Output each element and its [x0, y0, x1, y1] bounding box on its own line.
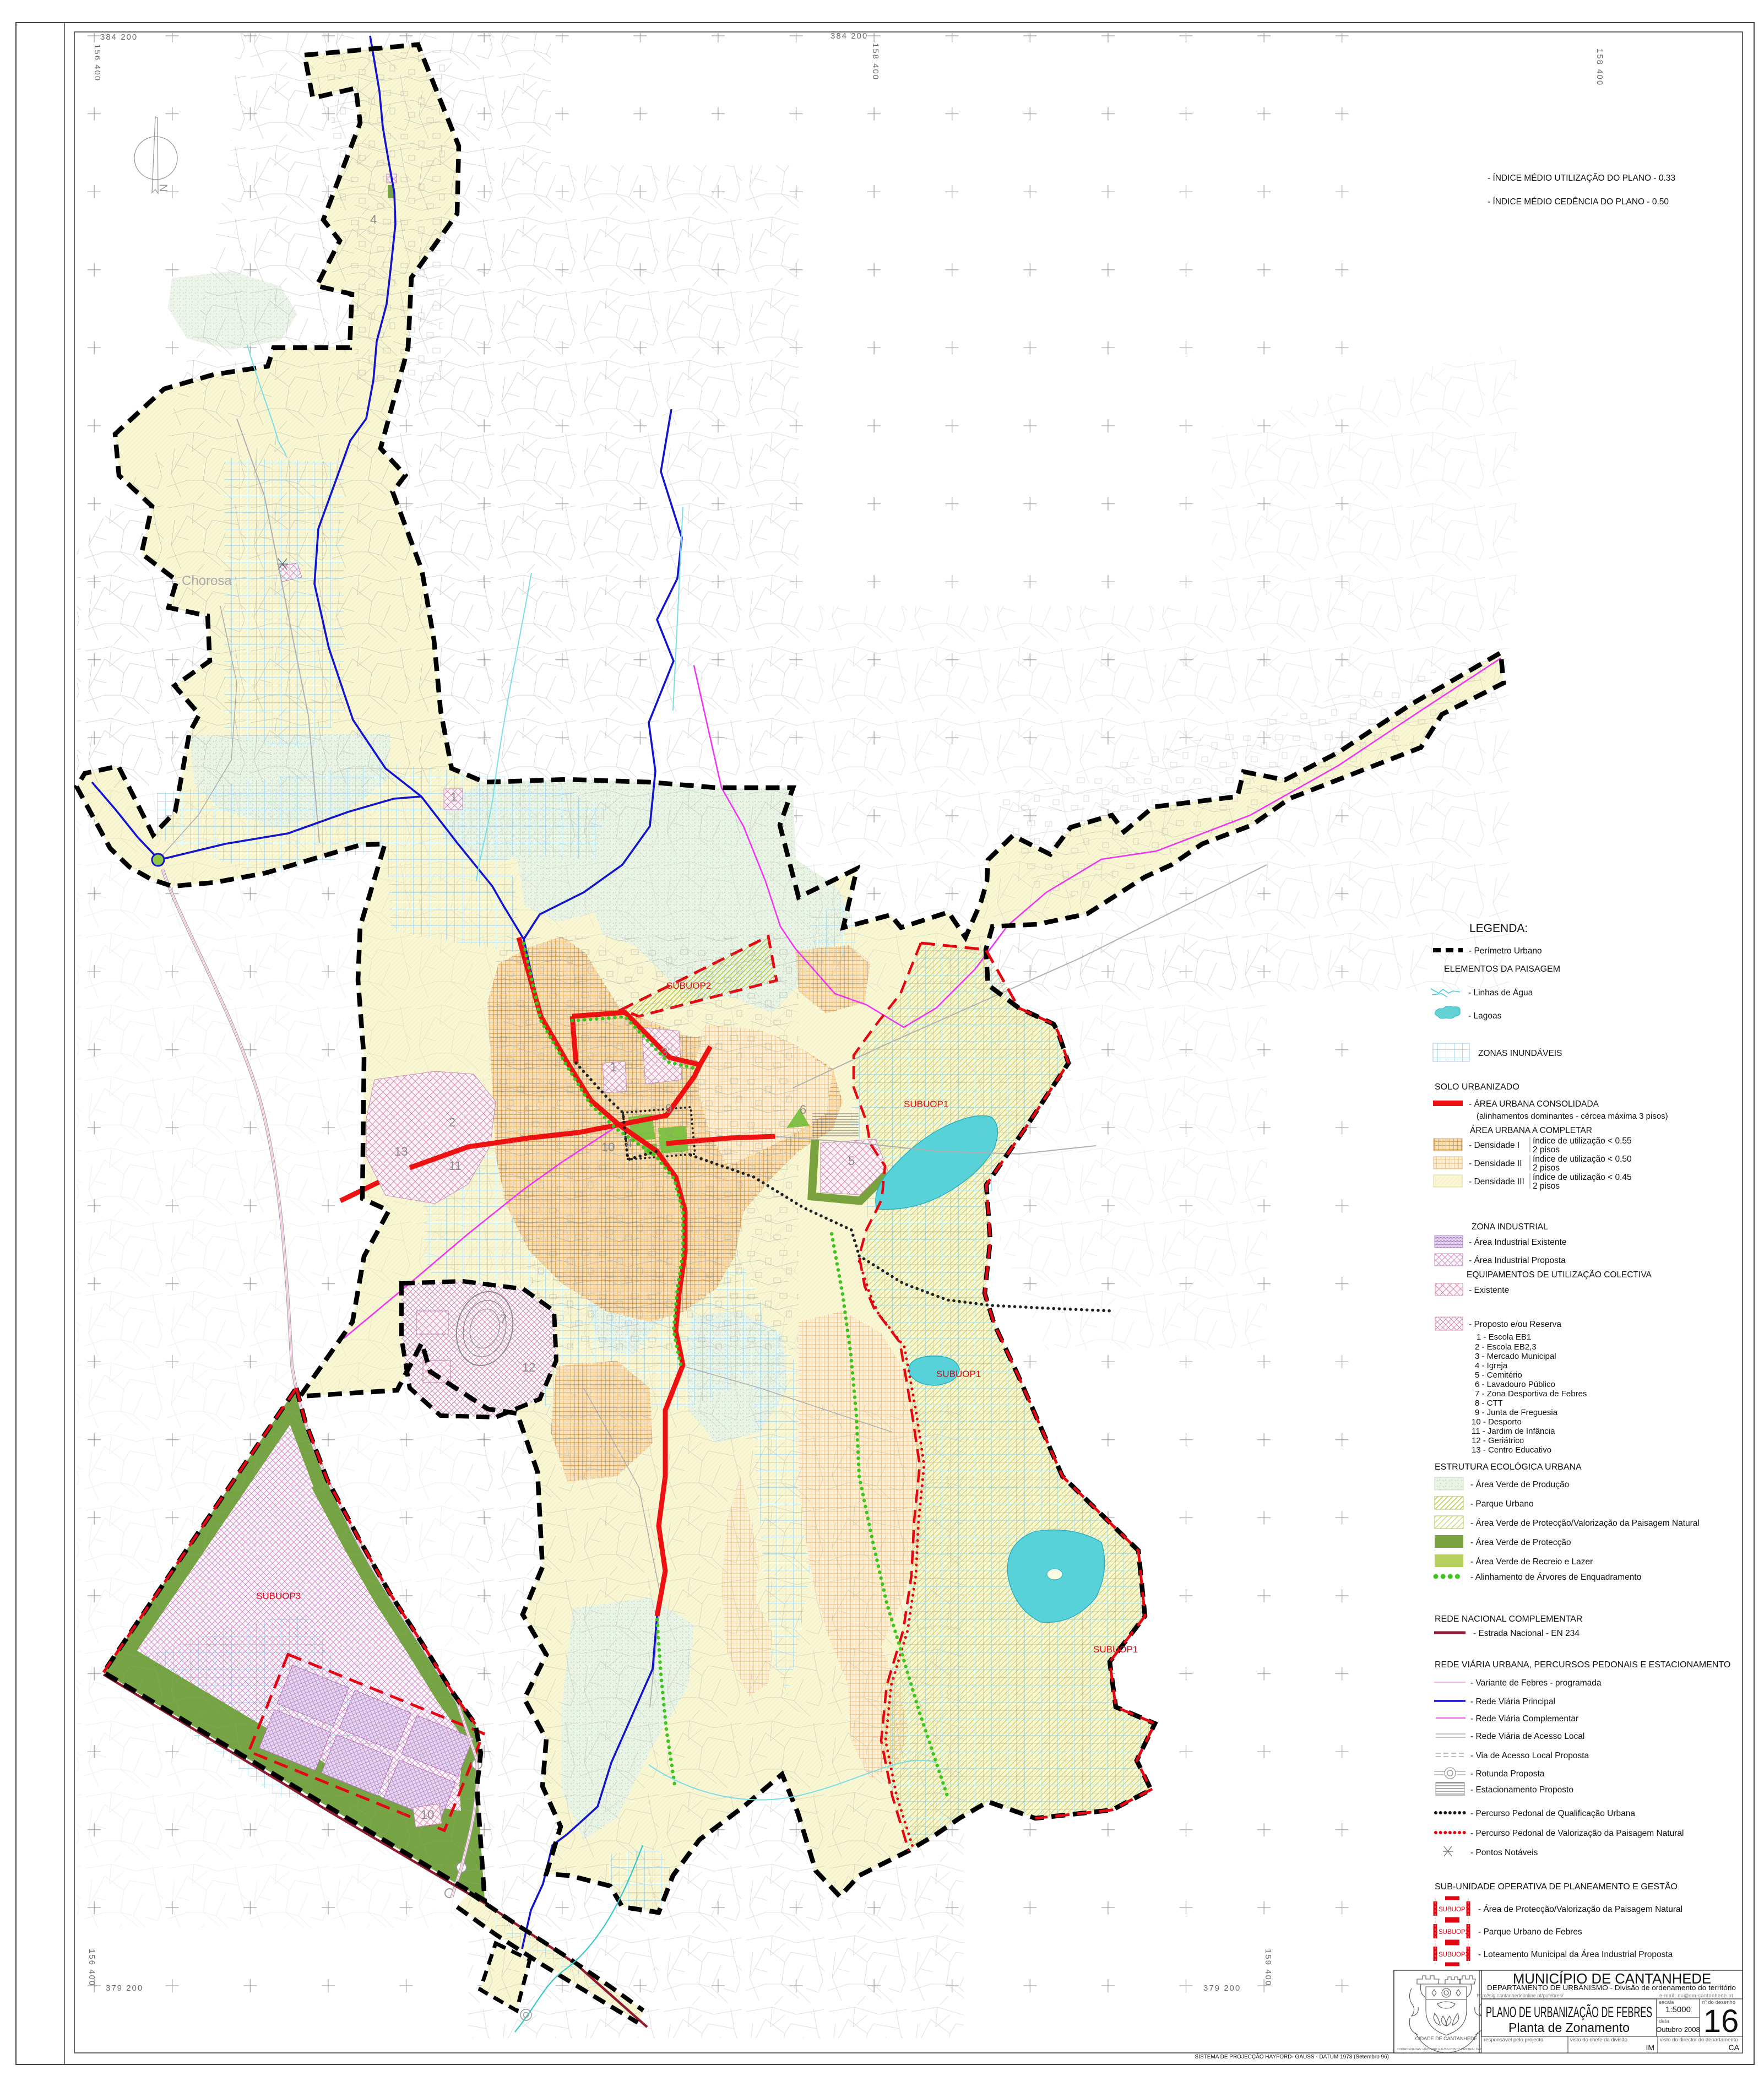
svg-text:4: 4: [626, 1136, 632, 1150]
svg-text:10: 10: [601, 1140, 615, 1154]
svg-text:SUBUOP3: SUBUOP3: [256, 1591, 301, 1601]
svg-text:7: 7: [500, 1312, 507, 1326]
svg-text:10 - Desporto: 10 - Desporto: [1472, 1417, 1522, 1427]
svg-text:10: 10: [421, 1808, 434, 1822]
svg-text:2 pisos: 2 pisos: [1533, 1163, 1560, 1173]
svg-text:8 - CTT: 8 - CTT: [1475, 1399, 1503, 1408]
svg-text:- Variante de Febres - program: - Variante de Febres - programada: [1470, 1678, 1602, 1688]
svg-text:N: N: [157, 184, 169, 192]
svg-text:2 - Escola EB2,3: 2 - Escola EB2,3: [1475, 1342, 1537, 1352]
svg-text:6: 6: [800, 1103, 806, 1117]
svg-text:156 400: 156 400: [93, 44, 102, 82]
svg-text:- Proposto e/ou Reserva: - Proposto e/ou Reserva: [1469, 1320, 1561, 1329]
svg-text:- Área Verde de Protecção/Valo: - Área Verde de Protecção/Valorização da…: [1470, 1519, 1700, 1528]
svg-text:- Via de Acesso Local Proposta: - Via de Acesso Local Proposta: [1470, 1751, 1589, 1760]
svg-text:ZONA INDUSTRIAL: ZONA INDUSTRIAL: [1472, 1222, 1548, 1232]
svg-text:- Rede Viária de Acesso Local: - Rede Viária de Acesso Local: [1470, 1732, 1584, 1741]
svg-text:REDE VIÁRIA URBANA, PERCURSOS: REDE VIÁRIA URBANA, PERCURSOS PEDONAIS E…: [1435, 1659, 1730, 1670]
svg-text:EQUIPAMENTOS DE UTILIZAÇÃO COL: EQUIPAMENTOS DE UTILIZAÇÃO COLECTIVA: [1467, 1270, 1652, 1280]
svg-text:SUBUOP1: SUBUOP1: [1439, 1906, 1469, 1913]
svg-text:- Alinhamento de Árvores de En: - Alinhamento de Árvores de Enquadrament…: [1470, 1573, 1641, 1582]
svg-text:6 - Lavadouro Público: 6 - Lavadouro Público: [1475, 1380, 1555, 1389]
svg-text:3 - Mercado Municipal: 3 - Mercado Municipal: [1475, 1352, 1556, 1361]
svg-text:responsável pelo projecto: responsável pelo projecto: [1484, 2037, 1543, 2043]
svg-text:159 400: 159 400: [1263, 1949, 1273, 1986]
svg-text:e-mail: du@cm-cantanhede.pt: e-mail: du@cm-cantanhede.pt: [1659, 1993, 1733, 1998]
svg-text:PLANO DE URBANIZAÇÃO DE FEBRES: PLANO DE URBANIZAÇÃO DE FEBRES: [1486, 2003, 1652, 2020]
svg-text:1: 1: [610, 1060, 617, 1074]
svg-text:1:5000: 1:5000: [1665, 2005, 1691, 2014]
svg-text:- Loteamento Municipal da Área: - Loteamento Municipal da Área Industria…: [1478, 1950, 1673, 1959]
svg-text:158 400: 158 400: [1595, 48, 1604, 86]
svg-text:156 400: 156 400: [87, 1949, 96, 1986]
svg-text:4 - Igreja: 4 - Igreja: [1475, 1361, 1508, 1370]
svg-text:SISTEMA DE PROJECÇÃO HAYFORD-: SISTEMA DE PROJECÇÃO HAYFORD- GAUSS - DA…: [1195, 2053, 1390, 2060]
svg-text:11: 11: [449, 1159, 462, 1173]
svg-text:SUBUOP1: SUBUOP1: [1093, 1644, 1138, 1655]
svg-text:- Perímetro Urbano: - Perímetro Urbano: [1469, 946, 1542, 956]
svg-text:2 pisos: 2 pisos: [1533, 1182, 1560, 1191]
svg-text:- Percurso Pedonal de Qualific: - Percurso Pedonal de Qualificação Urban…: [1470, 1809, 1635, 1818]
svg-text:ESTRUTURA ECOLÓGICA URBANA: ESTRUTURA ECOLÓGICA URBANA: [1435, 1461, 1582, 1472]
svg-text:16: 16: [1703, 2003, 1739, 2039]
svg-text:- Área Industrial Proposta: - Área Industrial Proposta: [1469, 1256, 1566, 1265]
svg-text:- Estrada Nacional - EN 234: - Estrada Nacional - EN 234: [1473, 1629, 1580, 1638]
svg-text:- Área Verde de Recreio e Laze: - Área Verde de Recreio e Lazer: [1470, 1557, 1593, 1567]
svg-text:http://sig.cantanhedeonline.pt: http://sig.cantanhedeonline.pt/pufebres/: [1477, 1993, 1564, 1998]
svg-text:13 - Centro Educativo: 13 - Centro Educativo: [1472, 1445, 1551, 1455]
svg-text:5: 5: [848, 1154, 855, 1168]
svg-text:- ÁREA URBANA CONSOLIDADA: - ÁREA URBANA CONSOLIDADA: [1469, 1099, 1599, 1109]
svg-text:CIDADE DE CANTANHEDE: CIDADE DE CANTANHEDE: [1415, 2036, 1478, 2041]
svg-text:- Área Verde de Protecção: - Área Verde de Protecção: [1470, 1538, 1571, 1547]
svg-text:- Rede Viária Principal: - Rede Viária Principal: [1470, 1697, 1555, 1706]
svg-text:384 200: 384 200: [831, 31, 868, 41]
svg-text:SOLO URBANIZADO: SOLO URBANIZADO: [1435, 1082, 1519, 1092]
svg-text:LEGENDA:: LEGENDA:: [1469, 922, 1528, 935]
svg-text:ELEMENTOS DA PAISAGEM: ELEMENTOS DA PAISAGEM: [1444, 964, 1560, 974]
svg-text:- Pontos Notáveis: - Pontos Notáveis: [1470, 1848, 1538, 1857]
svg-text:SUBUOP2: SUBUOP2: [666, 980, 711, 991]
svg-text:índice de utilização < 0.45: índice de utilização < 0.45: [1533, 1173, 1632, 1182]
svg-text:Planta de Zonamento: Planta de Zonamento: [1508, 2020, 1630, 2035]
svg-text:158 400: 158 400: [871, 43, 880, 80]
svg-text:- Parque Urbano de Febres: - Parque Urbano de Febres: [1478, 1927, 1582, 1937]
svg-text:- Rede Viária Complementar: - Rede Viária Complementar: [1470, 1714, 1578, 1724]
svg-text:7 - Zona Desportiva de Febres: 7 - Zona Desportiva de Febres: [1475, 1389, 1587, 1399]
svg-text:DEPARTAMENTO DE URBANISMO - Di: DEPARTAMENTO DE URBANISMO - Divisão de o…: [1487, 1984, 1736, 1992]
svg-text:9: 9: [665, 1102, 672, 1115]
svg-text:2: 2: [449, 1115, 455, 1129]
svg-text:CA: CA: [1729, 2043, 1740, 2052]
svg-text:SUB-UNIDADE OPERATIVA DE PLANE: SUB-UNIDADE OPERATIVA DE PLANEAMENTO E G…: [1435, 1881, 1678, 1892]
svg-text:379 200: 379 200: [1203, 1984, 1241, 1993]
svg-text:1: 1: [451, 790, 457, 804]
svg-text:- Densidade I: - Densidade I: [1469, 1141, 1519, 1150]
svg-text:SUBUOP2: SUBUOP2: [1439, 1929, 1469, 1936]
svg-text:- Lagoas: - Lagoas: [1468, 1011, 1502, 1021]
svg-text:11 - Jardim de Infância: 11 - Jardim de Infância: [1472, 1427, 1555, 1436]
svg-text:índice de utilização < 0.50: índice de utilização < 0.50: [1533, 1155, 1632, 1164]
svg-text:9 - Junta de Freguesia: 9 - Junta de Freguesia: [1475, 1408, 1558, 1417]
svg-text:SUBUOP1: SUBUOP1: [904, 1099, 948, 1109]
svg-text:- Área Verde de Produção: - Área Verde de Produção: [1470, 1480, 1569, 1489]
svg-text:- Percurso Pedonal de Valoriza: - Percurso Pedonal de Valorização da Pai…: [1470, 1829, 1684, 1838]
svg-text:SUBUOP1: SUBUOP1: [936, 1369, 981, 1379]
svg-text:- Estacionamento Proposto: - Estacionamento Proposto: [1470, 1785, 1573, 1795]
svg-text:- Área Industrial Existente: - Área Industrial Existente: [1469, 1238, 1566, 1247]
svg-text:COORDENADAS: HAYFORD GAUSS PON: COORDENADAS: HAYFORD GAUSS PONTO CENTRAL…: [1397, 2048, 1491, 2051]
svg-text:384 200: 384 200: [100, 32, 138, 42]
svg-text:REDE NACIONAL COMPLEMENTAR: REDE NACIONAL COMPLEMENTAR: [1435, 1614, 1582, 1624]
svg-text:12 - Geriátrico: 12 - Geriátrico: [1472, 1436, 1524, 1445]
svg-text:ZONAS INUNDÁVEIS: ZONAS INUNDÁVEIS: [1478, 1049, 1562, 1058]
svg-text:12: 12: [522, 1361, 535, 1374]
svg-text:ÁREA URBANA A COMPLETAR: ÁREA URBANA A COMPLETAR: [1470, 1126, 1592, 1135]
svg-text:13: 13: [394, 1145, 408, 1158]
svg-text:1 - Escola EB1: 1 - Escola EB1: [1477, 1332, 1531, 1342]
svg-text:4: 4: [370, 213, 377, 226]
svg-text:IM: IM: [1646, 2043, 1654, 2052]
svg-text:data: data: [1659, 2018, 1669, 2024]
svg-text:- Rotunda Proposta: - Rotunda Proposta: [1470, 1769, 1545, 1779]
svg-text:- Existente: - Existente: [1469, 1286, 1509, 1295]
svg-text:Outubro 2008: Outubro 2008: [1656, 2025, 1700, 2034]
svg-text:índice de utilização < 0.55: índice de utilização < 0.55: [1533, 1136, 1632, 1146]
svg-text:- Linhas de Água: - Linhas de Água: [1468, 988, 1533, 998]
svg-text:- Densidade III: - Densidade III: [1469, 1177, 1524, 1186]
svg-text:- Densidade II: - Densidade II: [1469, 1159, 1522, 1168]
svg-text:- Área de Protecção/Valorizaç: - Área de Protecção/Valorização da Paisa…: [1478, 1905, 1682, 1914]
svg-text:379 200: 379 200: [106, 1984, 143, 1993]
svg-text:- ÍNDICE MÉDIO CEDÊNCIA DO PLA: - ÍNDICE MÉDIO CEDÊNCIA DO PLANO - 0.50: [1488, 197, 1669, 207]
svg-text:visto do chefe da divisão: visto do chefe da divisão: [1570, 2037, 1627, 2043]
svg-text:- Parque Urbano: - Parque Urbano: [1470, 1499, 1534, 1509]
svg-text:3: 3: [661, 1045, 667, 1059]
svg-text:2 pisos: 2 pisos: [1533, 1145, 1560, 1155]
svg-text:SUBUOP3: SUBUOP3: [1439, 1952, 1469, 1958]
svg-text:Chorosa: Chorosa: [182, 573, 232, 588]
svg-text:visto do director do depar: visto do director do departamento: [1660, 2037, 1738, 2043]
svg-text:5 - Cemitério: 5 - Cemitério: [1475, 1370, 1522, 1380]
svg-text:(alinhamentos dominantes - cér: (alinhamentos dominantes - cércea máxima…: [1477, 1112, 1668, 1121]
svg-text:- ÍNDICE MÉDIO UTILIZAÇÃO DO P: - ÍNDICE MÉDIO UTILIZAÇÃO DO PLANO - 0.3…: [1488, 174, 1675, 183]
